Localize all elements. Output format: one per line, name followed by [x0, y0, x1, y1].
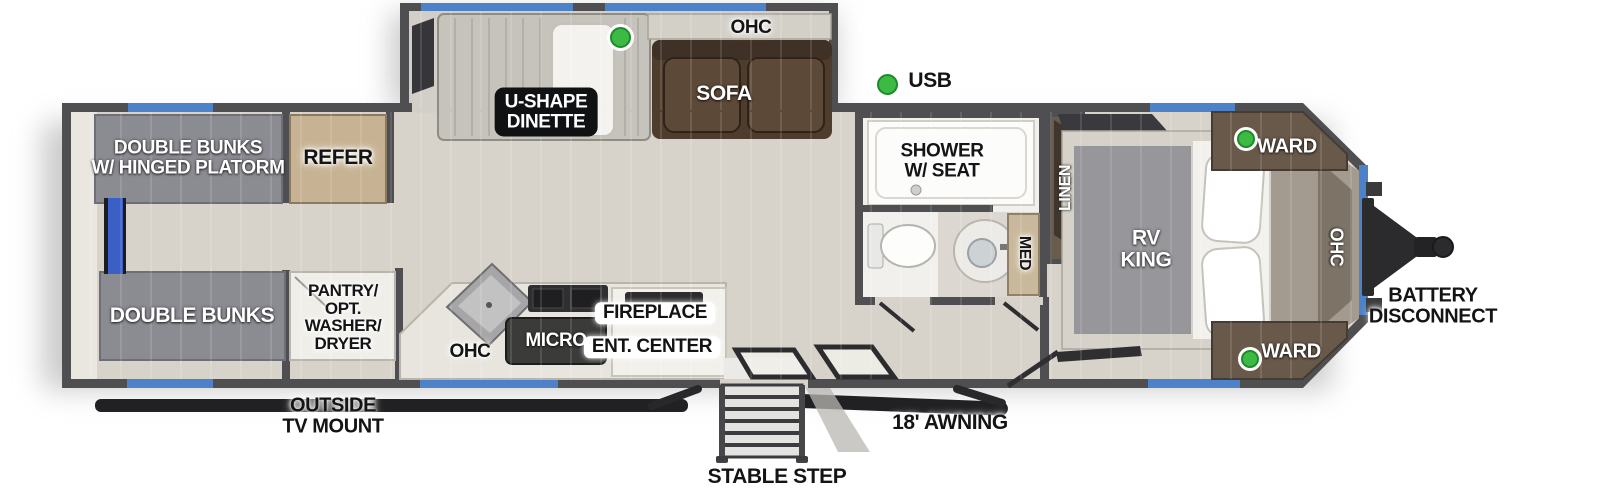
stable-step-label: STABLE STEP: [708, 466, 847, 488]
shower-label: SHOWERW/ SEAT: [900, 141, 983, 180]
window: [1148, 379, 1240, 388]
battery-disconnect-label: BATTERYDISCONNECT: [1369, 285, 1497, 326]
window: [420, 379, 558, 388]
pantry-label: PANTRY/OPT. WASHER/DRYER: [305, 282, 382, 352]
ward-top-label: WARD: [1257, 137, 1317, 158]
floorplan-drawing: [0, 0, 1600, 492]
double-bunks-label: DOUBLE BUNKS: [110, 305, 274, 327]
usb-dot-ward-top: [1237, 130, 1255, 148]
double-bunks-hinged-label: DOUBLE BUNKSW/ HINGED PLATORM: [91, 138, 284, 177]
ward-bottom-label: WARD: [1261, 342, 1321, 363]
fireplace-label: FIREPLACE: [595, 302, 715, 324]
linen-label: LINEN: [1058, 165, 1074, 211]
window: [1150, 103, 1235, 112]
awning: [95, 389, 1008, 416]
bedroom-ohc-label: OHC: [1327, 228, 1346, 267]
awning-label: 18' AWNING: [892, 412, 1008, 434]
slide-ohc-label: OHC: [730, 18, 771, 38]
rv-king-label: RVKING: [1121, 227, 1172, 270]
usb-dot-dinette: [610, 27, 631, 48]
sofa-label: SOFA: [696, 83, 752, 105]
shower-drain: [911, 185, 921, 195]
bathroom-sink: [968, 239, 996, 267]
floorplan-canvas: DOUBLE BUNKSW/ HINGED PLATORM REFER DOUB…: [0, 0, 1600, 492]
kitchen-ohc-label: OHC: [449, 342, 490, 362]
toilet: [881, 225, 935, 267]
window: [128, 103, 213, 112]
usb-dot-ward-bottom: [1241, 350, 1259, 368]
bunk-ladder: [108, 198, 123, 274]
ent-center-label: ENT. CENTER: [584, 336, 720, 358]
window: [127, 379, 213, 388]
hitch-coupler: [1433, 237, 1453, 257]
usb-dot-legend: [877, 74, 898, 95]
outside-tv-mount-label: OUTSIDETV MOUNT: [282, 395, 383, 436]
refer-label: REFER: [303, 147, 372, 169]
micro-label: MICRO: [525, 331, 586, 351]
med-label: MED: [1016, 236, 1032, 270]
usb-legend-label: USB: [908, 70, 951, 92]
dinette-label: U-SHAPEDINETTE: [495, 87, 598, 136]
slide-window: [421, 3, 573, 11]
slide-window: [605, 3, 766, 11]
